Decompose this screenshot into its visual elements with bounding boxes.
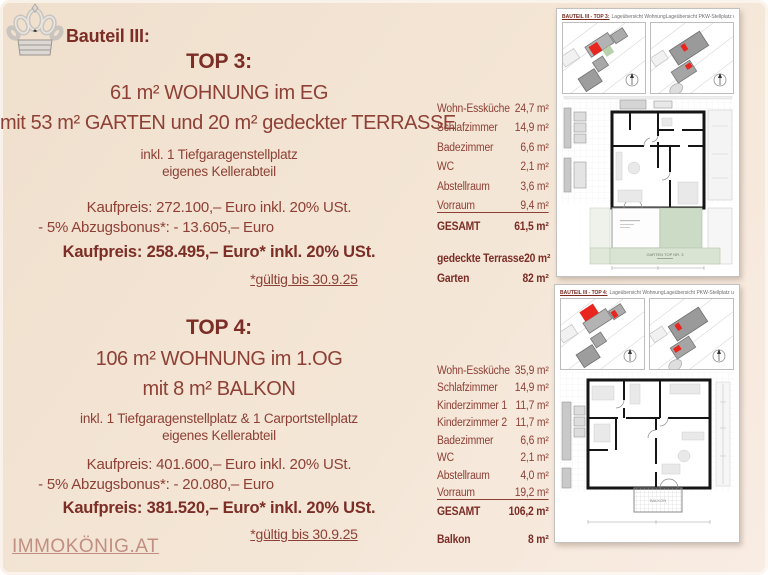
top3-price-gross: Kaufpreis: 272.100,– Euro inkl. 20% USt. (0, 199, 438, 216)
top3-room-table: Wohn-Essküche24,7 m² Schlafzimmer14,9 m²… (437, 95, 549, 285)
top3-includes-1: inkl. 1 Tiefgaragenstellplatz (0, 147, 438, 162)
top4-siteplan-apartment (560, 298, 645, 370)
top3-siteplan-apartment (562, 22, 646, 94)
flyer-page: Bauteil III: TOP 3: 61 m² WOHNUNG im EG … (0, 0, 768, 575)
top4-subtitle-1: 106 m² WOHNUNG im 1.OG (0, 348, 438, 371)
top4-price-final: Kaufpreis: 381.520,– Euro* inkl. 20% USt… (0, 499, 438, 518)
top4-floorplan-drawing: BALKON (560, 372, 734, 538)
top3-includes-2: eigenes Kellerabteil (0, 164, 438, 179)
top3-discount: - 5% Abzugsbonus*: - 13.605,– Euro (0, 219, 375, 236)
top4-siteplan-parking-cellar (649, 298, 734, 370)
top3-floorplan-document: BAUTEIL III - TOP 3:Lageübersicht Wohnun… (556, 8, 740, 277)
table-row: Vorraum9,4 m² (437, 193, 549, 214)
top3-price-final: Kaufpreis: 258.495,– Euro* inkl. 20% USt… (0, 243, 438, 262)
table-extra-row: gedeckte Terrasse20 m² (437, 246, 549, 266)
table-row: Vorraum19,2 m² (437, 482, 549, 501)
top4-price-gross: Kaufpreis: 401.600,– Euro inkl. 20% USt. (0, 456, 438, 473)
balcony-label: BALKON (650, 498, 666, 503)
table-total-row: GESAMT106,2 m² (437, 500, 549, 518)
table-extra-row: Balkon8 m² (437, 529, 549, 547)
table-row: Badezimmer6,6 m² (437, 429, 549, 447)
top4-room-table: Wohn-Essküche35,9 m² Schlafzimmer14,9 m²… (437, 359, 549, 546)
top3-plan-header: BAUTEIL III - TOP 3:Lageübersicht Wohnun… (562, 14, 734, 21)
top4-includes-1: inkl. 1 Tiefgaragenstellplatz & 1 Carpor… (0, 411, 438, 426)
table-row: Wohn-Essküche35,9 m² (437, 359, 549, 377)
table-row: Abstellraum3,6 m² (437, 173, 549, 193)
table-row: Kinderzimmer 211,7 m² (437, 412, 549, 430)
top4-subtitle-2: mit 8 m² BALKON (0, 378, 438, 401)
top4-title: TOP 4: (0, 316, 438, 340)
table-row: Schlafzimmer14,9 m² (437, 377, 549, 395)
table-row: Schlafzimmer14,9 m² (437, 115, 549, 135)
website-link[interactable]: IMMOKÖNIG.AT (12, 536, 159, 558)
garden-label: GARTEN TOP NR. 3 (646, 252, 684, 257)
table-row: WC2,1 m² (437, 154, 549, 174)
top4-discount: - 5% Abzugsbonus*: - 20.080,– Euro (0, 476, 375, 493)
top3-floorplan-drawing: GARTEN TOP NR. 3 (562, 96, 734, 272)
top3-subtitle-2: mit 53 m² GARTEN und 20 m² gedeckter TER… (0, 112, 438, 135)
top4-floorplan-document: BAUTEIL III - TOP 4:Lageübersicht Wohnun… (554, 284, 740, 543)
top3-title: TOP 3: (0, 50, 438, 74)
table-row: Kinderzimmer 111,7 m² (437, 394, 549, 412)
top3-subtitle-1: 61 m² WOHNUNG im EG (0, 82, 438, 105)
table-row: Abstellraum4,0 m² (437, 464, 549, 482)
compass-icon (626, 73, 638, 86)
top4-plan-header: BAUTEIL III - TOP 4:Lageübersicht Wohnun… (560, 290, 734, 297)
top4-includes-2: eigenes Kellerabteil (0, 428, 438, 443)
compass-icon (624, 349, 636, 362)
table-row: WC2,1 m² (437, 447, 549, 465)
table-row: Wohn-Essküche24,7 m² (437, 95, 549, 115)
compass-icon (714, 73, 726, 86)
table-total-row: GESAMT61,5 m² (437, 213, 549, 233)
compass-icon (713, 349, 725, 362)
section-heading: Bauteil III: (66, 26, 150, 47)
top3-siteplan-parking-cellar (650, 22, 734, 94)
table-row: Badezimmer6,6 m² (437, 134, 549, 154)
table-extra-row: Garten82 m² (437, 265, 549, 285)
